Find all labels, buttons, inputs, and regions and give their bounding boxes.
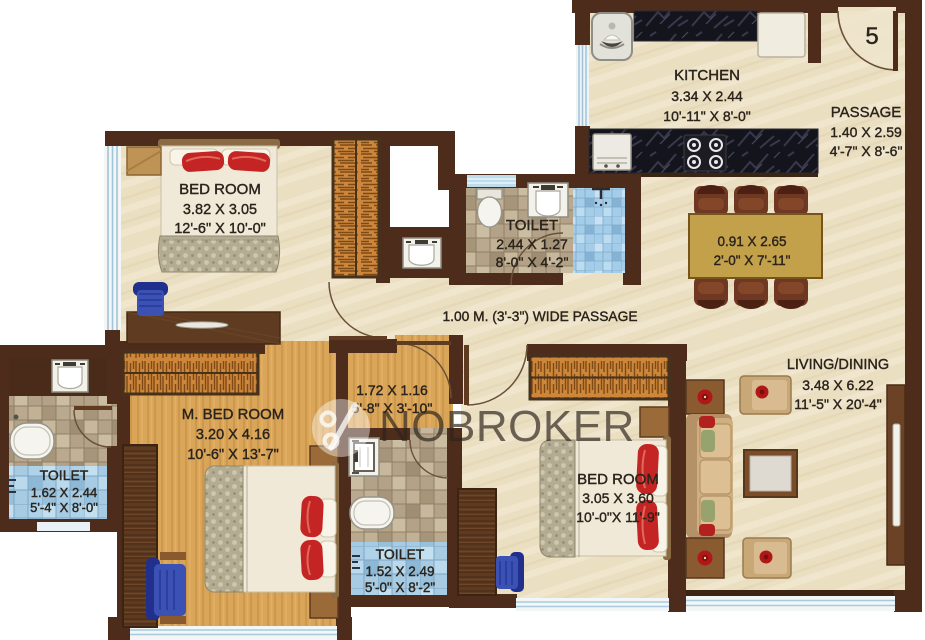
svg-text:M. BED ROOM: M. BED ROOM — [182, 406, 285, 423]
svg-text:LIVING/DINING: LIVING/DINING — [787, 357, 889, 373]
svg-text:TOILET: TOILET — [376, 546, 425, 562]
svg-text:3.05 X 3.60: 3.05 X 3.60 — [582, 490, 654, 506]
svg-text:10'-6" X 13'-7": 10'-6" X 13'-7" — [187, 447, 279, 463]
svg-text:1.52 X 2.49: 1.52 X 2.49 — [365, 564, 434, 579]
svg-text:3.34 X 2.44: 3.34 X 2.44 — [671, 88, 743, 104]
svg-text:2.44 X 1.27: 2.44 X 1.27 — [496, 236, 568, 252]
svg-text:BED ROOM: BED ROOM — [179, 181, 261, 198]
svg-text:NOBROKER: NOBROKER — [379, 402, 635, 451]
svg-text:5'-4" X 8'-0": 5'-4" X 8'-0" — [30, 500, 98, 515]
svg-text:1.72 X 1.16: 1.72 X 1.16 — [356, 382, 428, 398]
svg-text:1.62 X 2.44: 1.62 X 2.44 — [31, 485, 98, 500]
svg-text:1.00 M. (3'-3") WIDE PASSAGE: 1.00 M. (3'-3") WIDE PASSAGE — [442, 309, 637, 324]
svg-text:1.40 X 2.59: 1.40 X 2.59 — [830, 124, 902, 140]
svg-text:4'-7" X 8'-6": 4'-7" X 8'-6" — [830, 143, 903, 159]
svg-text:5'-0" X 8'-2": 5'-0" X 8'-2" — [365, 580, 435, 595]
svg-text:8'-0" X 4'-2": 8'-0" X 4'-2" — [496, 254, 569, 270]
svg-text:KITCHEN: KITCHEN — [674, 67, 740, 84]
svg-text:10'-11" X 8'-0": 10'-11" X 8'-0" — [663, 108, 750, 124]
svg-text:3.48 X 6.22: 3.48 X 6.22 — [802, 377, 874, 393]
svg-text:TOILET: TOILET — [40, 467, 89, 483]
svg-text:12'-6" X 10'-0": 12'-6" X 10'-0" — [174, 221, 266, 237]
svg-text:11'-5" X 20'-4": 11'-5" X 20'-4" — [794, 396, 881, 412]
svg-text:BED ROOM: BED ROOM — [577, 471, 659, 488]
svg-text:2'-0" X 7'-11": 2'-0" X 7'-11" — [714, 253, 791, 268]
svg-text:3.82 X 3.05: 3.82 X 3.05 — [183, 202, 257, 218]
svg-text:TOILET: TOILET — [506, 217, 558, 234]
svg-text:0.91 X 2.65: 0.91 X 2.65 — [717, 234, 786, 249]
svg-text:3.20 X 4.16: 3.20 X 4.16 — [196, 427, 270, 443]
svg-text:PASSAGE: PASSAGE — [831, 104, 902, 121]
svg-text:5: 5 — [865, 23, 878, 50]
svg-text:10'-0"X 11'-9": 10'-0"X 11'-9" — [576, 509, 660, 525]
